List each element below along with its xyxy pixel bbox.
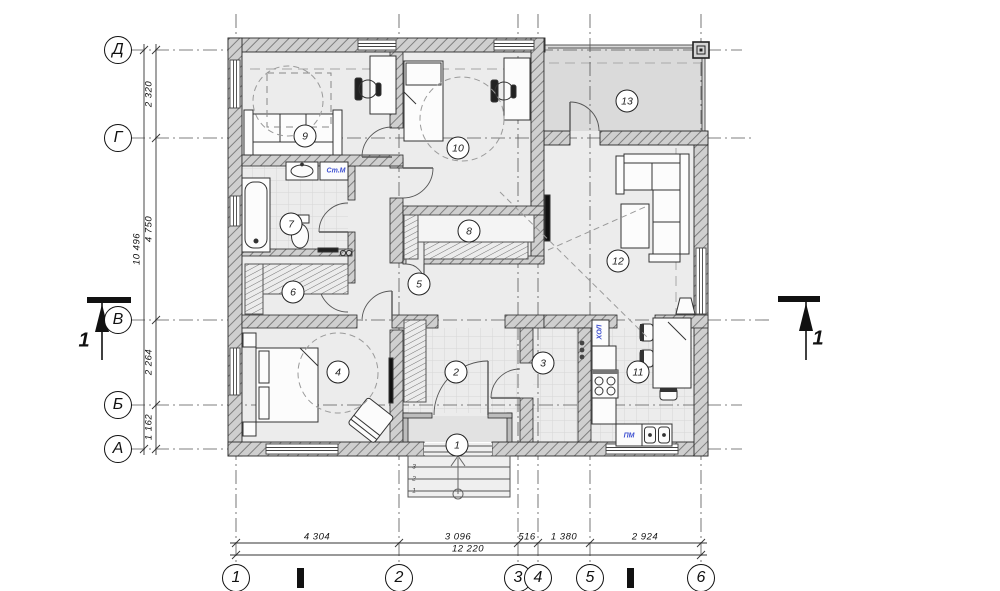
dim-left-segment: 4 750 xyxy=(144,216,155,242)
axis-bubble-row-Б: Б xyxy=(104,391,132,419)
axis-bubble-col-6: 6 xyxy=(687,564,715,591)
section-label-left: 1 xyxy=(78,330,89,353)
dim-bottom-segment: 2 924 xyxy=(632,532,658,543)
dim-left-segment: 2 264 xyxy=(144,349,155,375)
room-number-3: 3 xyxy=(532,352,555,375)
axis-bubble-col-5: 5 xyxy=(576,564,604,591)
room-number-9: 9 xyxy=(294,125,317,148)
axis-bubble-row-А: А xyxy=(104,435,132,463)
room-number-10: 10 xyxy=(447,137,470,160)
floor-plan-canvas: ДГВБА1234562 3204 7502 2641 16210 4964 3… xyxy=(0,0,1000,591)
room-number-8: 8 xyxy=(458,220,481,243)
room-number-2: 2 xyxy=(445,361,468,384)
dim-left-segment: 2 320 xyxy=(144,81,155,107)
step-label-3: 3 xyxy=(412,464,416,471)
dim-left-total: 10 496 xyxy=(132,233,143,265)
dim-bottom-total: 12 220 xyxy=(452,544,484,555)
dim-bottom-segment: 3 096 xyxy=(445,532,471,543)
dim-bottom-segment: 516 xyxy=(518,532,535,543)
room-number-11: 11 xyxy=(627,361,650,384)
appliance-label-ХОЛ: ХОЛ xyxy=(597,325,604,340)
dim-left-segment: 1 162 xyxy=(144,414,155,440)
step-label-1: 1 xyxy=(412,488,416,495)
appliance-label-ПМ: ПМ xyxy=(624,433,635,440)
appliance-label-Ст.М: Ст.М xyxy=(327,168,346,175)
axis-bubble-row-Д: Д xyxy=(104,36,132,64)
section-label-right: 1 xyxy=(812,328,823,351)
dim-bottom-segment: 4 304 xyxy=(304,532,330,543)
room-number-7: 7 xyxy=(280,213,303,236)
axis-bubble-row-Г: Г xyxy=(104,124,132,152)
axis-bubble-col-4: 4 xyxy=(524,564,552,591)
annotation-overlay: ДГВБА1234562 3204 7502 2641 16210 4964 3… xyxy=(0,0,1000,591)
axis-bubble-col-1: 1 xyxy=(222,564,250,591)
room-number-1: 1 xyxy=(446,434,469,457)
room-number-4: 4 xyxy=(327,361,350,384)
room-number-5: 5 xyxy=(408,273,431,296)
room-number-6: 6 xyxy=(282,281,305,304)
step-label-2: 2 xyxy=(412,476,416,483)
room-number-13: 13 xyxy=(616,90,639,113)
axis-bubble-col-2: 2 xyxy=(385,564,413,591)
room-number-12: 12 xyxy=(607,250,630,273)
axis-bubble-row-В: В xyxy=(104,306,132,334)
dim-bottom-segment: 1 380 xyxy=(551,532,577,543)
